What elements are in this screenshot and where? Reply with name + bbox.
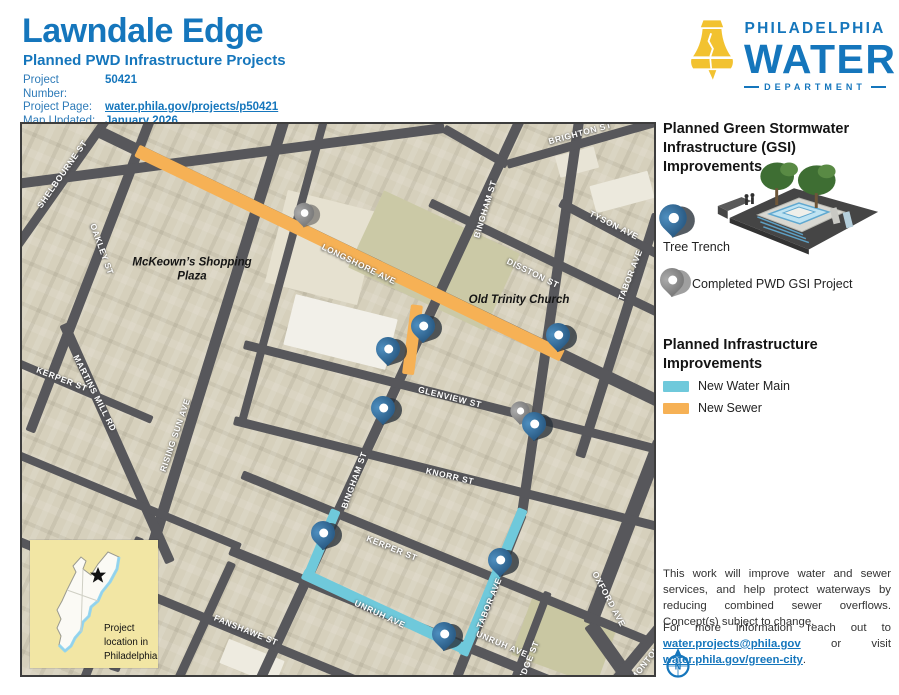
- map-building: [589, 171, 654, 214]
- map-pin-tree-trench: [411, 314, 435, 338]
- inset-caption: Project location in Philadelphia: [104, 622, 158, 665]
- contact-text: or visit: [801, 638, 891, 650]
- page-title: Lawndale Edge: [22, 12, 263, 51]
- road-unnamed: [442, 124, 509, 168]
- road-kerper-st: [240, 470, 648, 644]
- project-number-value: 50421: [105, 74, 137, 101]
- sewer-label: New Sewer: [698, 401, 762, 415]
- place-label: Old Trinity Church: [459, 293, 579, 307]
- water-main-label: New Water Main: [698, 379, 790, 393]
- page-subtitle: Planned PWD Infrastructure Projects: [23, 52, 286, 69]
- meta-label: Project Page:: [23, 101, 105, 115]
- compass-north-icon: N: [663, 648, 693, 680]
- map-pin-tree-trench: [488, 548, 512, 572]
- map-pin-completed-gsi: [294, 203, 314, 223]
- street-label: BINGHAM ST: [339, 450, 369, 510]
- completed-gsi-label: Completed PWD GSI Project: [692, 277, 852, 291]
- meta-row-project-number: Project Number: 50421: [23, 74, 278, 101]
- infra-heading: Planned Infrastructure Improvements: [663, 336, 853, 374]
- page: Lawndale Edge Planned PWD Infrastructure…: [0, 0, 899, 695]
- road-oxford-ave: [583, 439, 656, 626]
- logo-department-text: DEPARTMENT: [764, 82, 866, 92]
- map-pin-tree-trench: [311, 521, 335, 545]
- street-label: GLENVIEW ST: [417, 384, 483, 409]
- logo-water: WATER: [744, 39, 886, 79]
- logo-department: DEPARTMENT: [744, 82, 886, 92]
- logo-dash-left: [744, 86, 759, 88]
- road-tabor-upper: [517, 122, 585, 515]
- philadelphia-locator-inset: Project location in Philadelphia: [30, 540, 158, 668]
- contact-note: For more information reach out to water.…: [663, 621, 891, 669]
- street-label: KNORR ST: [425, 466, 475, 487]
- liberty-bell-icon: [682, 16, 742, 90]
- map-pin-tree-trench: [376, 337, 400, 361]
- logo-dash-right: [871, 86, 886, 88]
- meta-label: Project Number:: [23, 74, 105, 101]
- contact-text: .: [803, 654, 806, 666]
- map-pin-tree-trench: [522, 412, 546, 436]
- completed-gsi-pin-icon: [660, 268, 684, 292]
- meta-row-project-page: Project Page: water.phila.gov/projects/p…: [23, 101, 278, 115]
- project-map: SHELBOURNE STOAKLEY STBINGHAM STBRIGHTON…: [20, 122, 656, 677]
- project-meta: Project Number: 50421 Project Page: wate…: [23, 74, 278, 128]
- tree-trench-pin-icon: [659, 204, 687, 232]
- contact-text: For more information reach out to: [663, 622, 891, 634]
- tree-trench-label: Tree Trench: [663, 240, 730, 254]
- water-main-swatch: [663, 381, 689, 392]
- map-pin-tree-trench: [432, 622, 456, 646]
- pwd-logo-text: PHILADELPHIA WATER DEPARTMENT: [744, 20, 886, 92]
- sewer-swatch: [663, 403, 689, 414]
- svg-text:N: N: [675, 662, 682, 672]
- project-page-link[interactable]: water.phila.gov/projects/p50421: [105, 101, 278, 115]
- pwd-logo: PHILADELPHIA WATER DEPARTMENT: [680, 10, 890, 102]
- map-pin-tree-trench: [371, 396, 395, 420]
- place-label: McKeown’s Shopping Plaza: [132, 256, 252, 285]
- map-pin-tree-trench: [546, 323, 570, 347]
